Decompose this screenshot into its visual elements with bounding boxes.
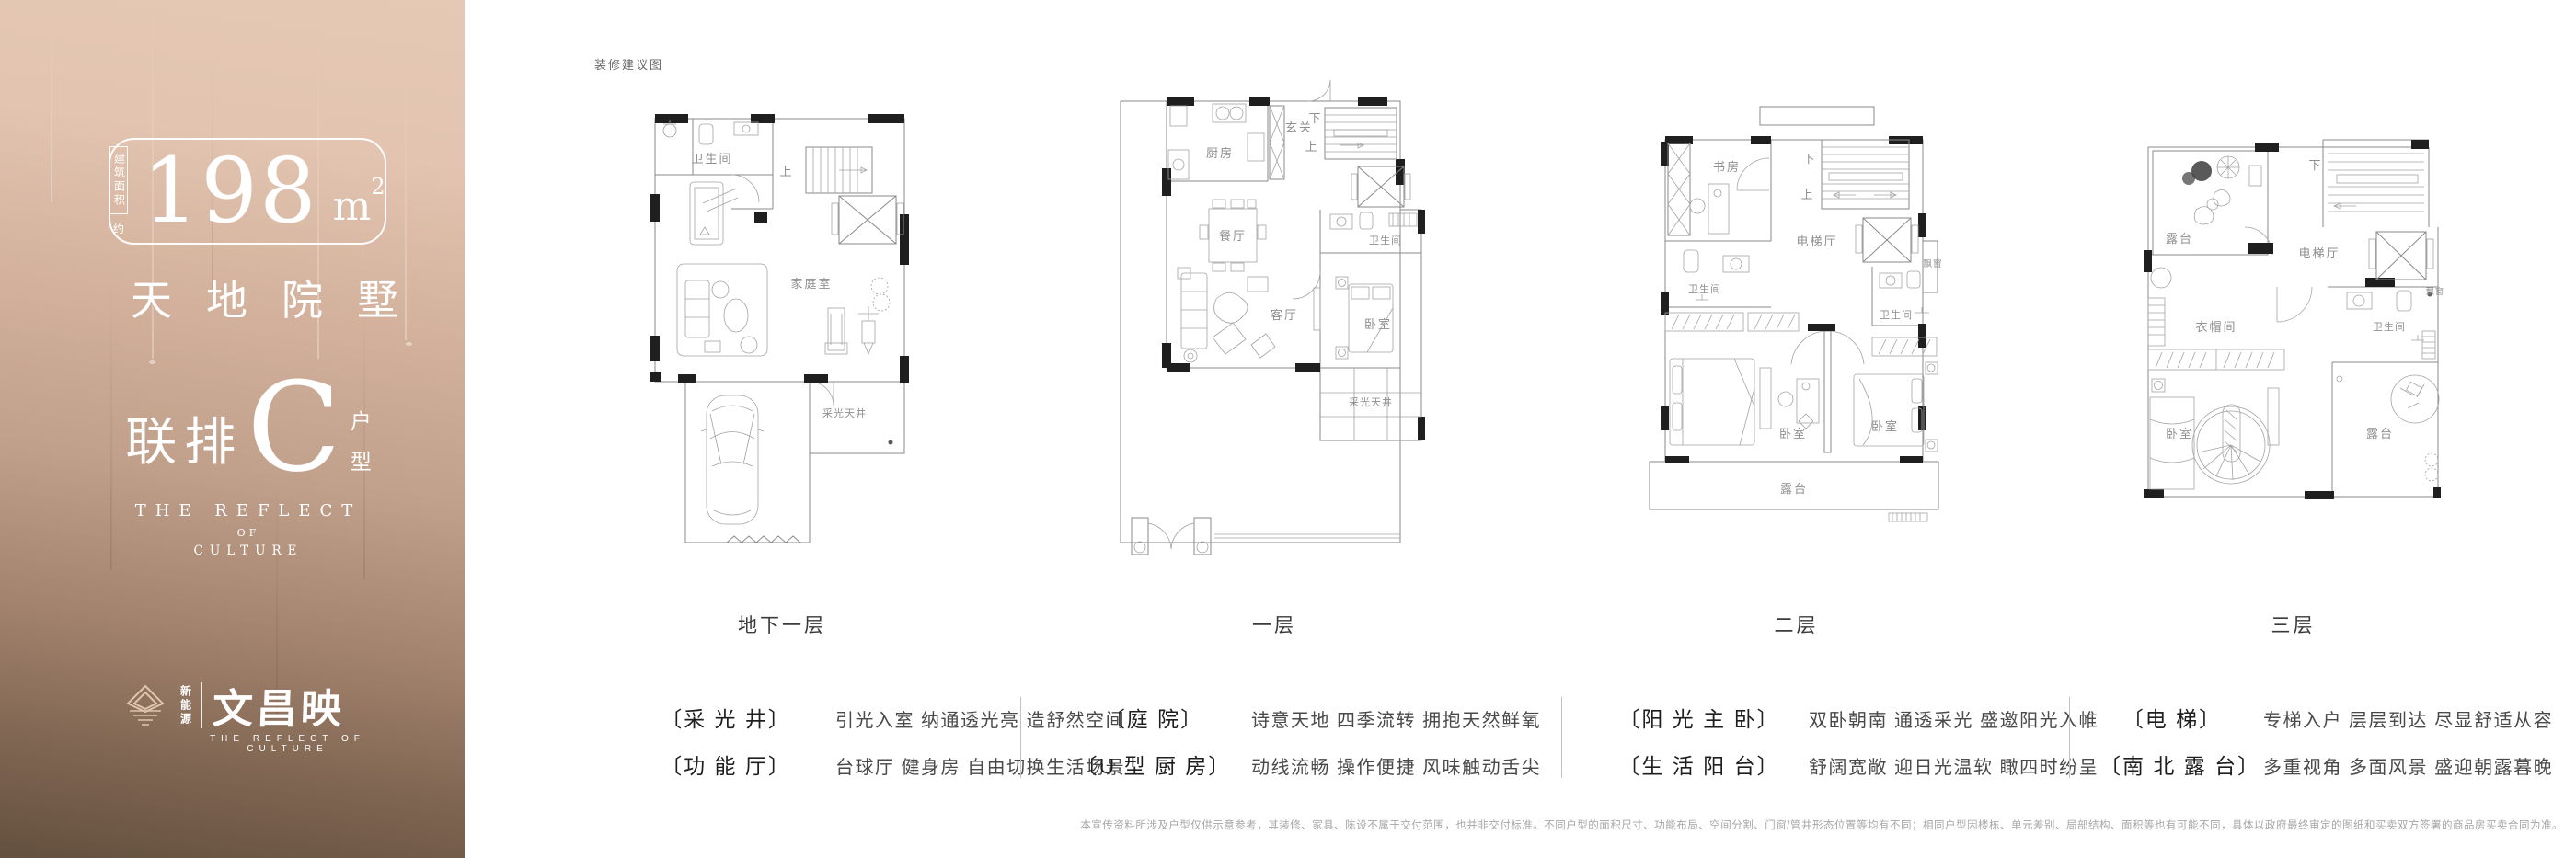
walls bbox=[1650, 107, 1938, 509]
room-bedroom: 卧室 bbox=[2166, 427, 2193, 440]
feature-row: 〔庭 院〕 诗意天地 四季流转 拥抱天然鲜氧 bbox=[1075, 702, 1541, 733]
room-bath: 卫生间 bbox=[1369, 234, 1402, 246]
plan-label-level2: 二层 bbox=[1642, 611, 1950, 638]
type-letter: C bbox=[247, 366, 341, 489]
room-bedroom-center: 卧室 bbox=[1779, 427, 1807, 440]
stairs bbox=[1822, 140, 1909, 209]
disclaimer-text: 本宣传资料所涉及户型仅供示意参考，其装修、家具、陈设不属于交付范围，也并非交付标… bbox=[1080, 818, 2563, 832]
room-study: 书房 bbox=[1713, 160, 1741, 174]
feature-divider bbox=[1020, 697, 1021, 778]
car bbox=[701, 395, 764, 524]
feature-desc: 动线流畅 操作便捷 风味触动舌尖 bbox=[1251, 752, 1541, 779]
elevator bbox=[2369, 232, 2433, 280]
foyer-closet bbox=[1270, 106, 1284, 179]
panel-title: 天地院墅 bbox=[97, 267, 400, 326]
feature-divider bbox=[1561, 697, 1562, 778]
room-baywindow: 飘窗 bbox=[1923, 258, 1942, 269]
feature-desc: 专梯入户 层层到达 尽显舒适从容 bbox=[2263, 705, 2553, 732]
area-approx-label: 约 bbox=[113, 221, 124, 236]
stair-down: 下 bbox=[1802, 152, 1816, 166]
cloakroom bbox=[2148, 268, 2284, 370]
room-cloakroom: 衣帽间 bbox=[2195, 320, 2237, 334]
stairs bbox=[2328, 154, 2424, 212]
plan-label-level1: 一层 bbox=[1113, 611, 1435, 638]
living-set bbox=[1178, 268, 1320, 362]
brand-panel: 建筑面积 约 198 m2 天地院墅 联排 C 户 型 THE REFLECT … bbox=[0, 0, 465, 858]
elevator bbox=[1856, 218, 1918, 262]
feature-tag: 〔阳 光 主 卧〕 bbox=[1608, 702, 1790, 733]
feature-row: 〔U 型 厨 房〕 动线流畅 操作便捷 风味触动舌尖 bbox=[1075, 749, 1541, 780]
panel-subtitle: THE REFLECT OF CULTURE bbox=[97, 501, 400, 558]
logo-divider bbox=[201, 682, 202, 728]
feature-tag: 〔功 能 厅〕 bbox=[635, 749, 817, 780]
floorplan-level2: 书房 下 上 电梯厅 卫生间 卫生间 飘窗 卧室 卧室 露台 bbox=[1642, 103, 1950, 604]
feature-tag: 〔采 光 井〕 bbox=[635, 702, 817, 733]
feature-desc: 双卧朝南 通透采光 盛邀阳光入帷 bbox=[1809, 705, 2099, 732]
elevator bbox=[832, 196, 903, 244]
walls bbox=[2148, 140, 2438, 497]
feature-row: 〔南 北 露 台〕 多重视角 多面风景 盛迎朝露暮晚 bbox=[2099, 749, 2553, 780]
sofa-area bbox=[677, 264, 767, 356]
floorplan-level1: 厨房 玄关 下 上 餐厅 客厅 卫生间 卧室 采光天井 bbox=[1113, 78, 1435, 612]
room-elevator-hall: 电梯厅 bbox=[1796, 235, 1837, 248]
bath-right bbox=[1880, 271, 1929, 313]
kitchen bbox=[1168, 104, 1264, 179]
room-bedroom-right: 卧室 bbox=[1871, 419, 1899, 433]
room-terrace-top: 露台 bbox=[2166, 232, 2193, 246]
floorplan-level3: 露台 下 电梯厅 衣帽间 卫生间 卧室 露台 飘窗 bbox=[2139, 103, 2447, 604]
plan-label-basement: 地下一层 bbox=[635, 611, 929, 638]
room-lightwell: 采光天井 bbox=[1349, 395, 1393, 408]
bath-fixtures bbox=[1330, 212, 1417, 229]
feature-desc: 诗意天地 四季流转 拥抱天然鲜氧 bbox=[1251, 705, 1541, 732]
room-baywindow: 飘窗 bbox=[2426, 286, 2444, 296]
bathroom-fixtures bbox=[663, 120, 758, 144]
room-terrace-bottom: 露台 bbox=[2366, 427, 2394, 440]
billiard-table bbox=[690, 182, 738, 245]
logo-diamond-icon bbox=[121, 681, 170, 730]
lightwell-dot bbox=[889, 440, 893, 445]
room-elevator-hall: 电梯厅 bbox=[2298, 246, 2340, 260]
feature-block-2: 〔庭 院〕 诗意天地 四季流转 拥抱天然鲜氧 〔U 型 厨 房〕 动线流畅 操作… bbox=[1075, 702, 1541, 780]
area-unit: m2 bbox=[333, 174, 385, 230]
gym-equipment bbox=[825, 278, 890, 354]
stair-up: 上 bbox=[1800, 188, 1814, 201]
room-bath: 卫生间 bbox=[2373, 320, 2406, 333]
area-box-label: 建筑面积 bbox=[109, 146, 127, 214]
room-lightwell: 采光天井 bbox=[822, 406, 867, 419]
desk-center bbox=[1778, 379, 1819, 429]
room-terrace: 露台 bbox=[1780, 482, 1808, 496]
type-prefix: 联排 bbox=[125, 401, 243, 475]
feature-desc: 舒阔宽敞 迎日光温软 瞰四时纷呈 bbox=[1809, 752, 2099, 779]
poster: 建筑面积 约 198 m2 天地院墅 联排 C 户 型 THE REFLECT … bbox=[0, 0, 2576, 858]
feature-tag: 〔电 梯〕 bbox=[2099, 702, 2245, 733]
area-side-labels: 建筑面积 约 bbox=[109, 146, 127, 236]
study bbox=[1668, 143, 1729, 235]
plan-label-level3: 三层 bbox=[2139, 611, 2447, 638]
logo-brand-name: 文昌映 bbox=[211, 676, 345, 735]
floorplan-basement: 卫生间 上 家庭室 采光天井 bbox=[635, 106, 929, 607]
feature-row: 〔电 梯〕 专梯入户 层层到达 尽显舒适从容 bbox=[2099, 702, 2553, 733]
type-suffix: 户 型 bbox=[351, 404, 372, 475]
feature-tag: 〔生 活 阳 台〕 bbox=[1608, 749, 1790, 780]
feature-desc: 多重视角 多面风景 盛迎朝露暮晚 bbox=[2263, 752, 2553, 779]
feature-row: 〔采 光 井〕 引光入室 纳通透光亮 造舒然空间 bbox=[635, 702, 1125, 733]
room-bath-left: 卫生间 bbox=[1688, 282, 1721, 295]
feature-tag: 〔南 北 露 台〕 bbox=[2099, 749, 2245, 780]
feature-block-3: 〔阳 光 主 卧〕 双卧朝南 通透采光 盛邀阳光入帷 〔生 活 阳 台〕 舒阔宽… bbox=[1608, 702, 2099, 780]
stairs bbox=[806, 147, 872, 193]
area-badge: 建筑面积 约 198 m2 bbox=[109, 138, 386, 245]
feature-divider bbox=[2069, 697, 2070, 778]
feature-block-1: 〔采 光 井〕 引光入室 纳通透光亮 造舒然空间 〔功 能 厅〕 台球厅 健身房… bbox=[635, 702, 1125, 780]
stair-up: 上 bbox=[779, 165, 793, 178]
room-labels: 露台 下 电梯厅 衣帽间 卫生间 卧室 露台 飘窗 bbox=[2166, 158, 2444, 440]
feature-row: 〔生 活 阳 台〕 舒阔宽敞 迎日光温软 瞰四时纷呈 bbox=[1608, 749, 2099, 780]
wall-fills bbox=[1162, 97, 1425, 440]
bed-left bbox=[1670, 359, 1771, 445]
feature-row: 〔功 能 厅〕 台球厅 健身房 自由切换生活场景 bbox=[635, 749, 1125, 780]
unit-type: 联排 C 户 型 bbox=[92, 366, 405, 489]
courtyard-gate bbox=[1132, 518, 1400, 555]
area-value: 198 bbox=[143, 151, 318, 231]
feature-tag: 〔U 型 厨 房〕 bbox=[1075, 749, 1233, 780]
renovation-note: 装修建议图 bbox=[594, 55, 663, 73]
room-bath: 卫生间 bbox=[691, 152, 732, 166]
room-labels: 卫生间 上 家庭室 采光天井 bbox=[691, 152, 867, 419]
room-dining: 餐厅 bbox=[1219, 229, 1247, 243]
stair-up: 上 bbox=[1305, 140, 1318, 154]
room-bedroom: 卧室 bbox=[1364, 317, 1392, 331]
terrace-hatch bbox=[1889, 513, 1927, 521]
feature-tag: 〔庭 院〕 bbox=[1075, 702, 1233, 733]
logo-tagline: THE REFLECT OF CULTURE bbox=[0, 734, 465, 754]
feature-row: 〔阳 光 主 卧〕 双卧朝南 通透采光 盛邀阳光入帷 bbox=[1608, 702, 2099, 733]
room-family: 家庭室 bbox=[790, 277, 832, 291]
room-bath-right: 卫生间 bbox=[1880, 308, 1913, 321]
feature-block-4: 〔电 梯〕 专梯入户 层层到达 尽显舒适从容 〔南 北 露 台〕 多重视角 多面… bbox=[2099, 702, 2553, 780]
brand-logo: 新能源 文昌映 bbox=[0, 676, 465, 735]
terrace-top bbox=[2182, 156, 2261, 224]
logo-vertical-text: 新能源 bbox=[180, 685, 191, 726]
room-living: 客厅 bbox=[1271, 308, 1298, 322]
stair-down: 下 bbox=[2308, 158, 2322, 172]
room-kitchen: 厨房 bbox=[1206, 146, 1234, 160]
stairs bbox=[1325, 108, 1397, 159]
wall-fills bbox=[2144, 140, 2441, 499]
stair-down: 下 bbox=[1308, 111, 1322, 125]
